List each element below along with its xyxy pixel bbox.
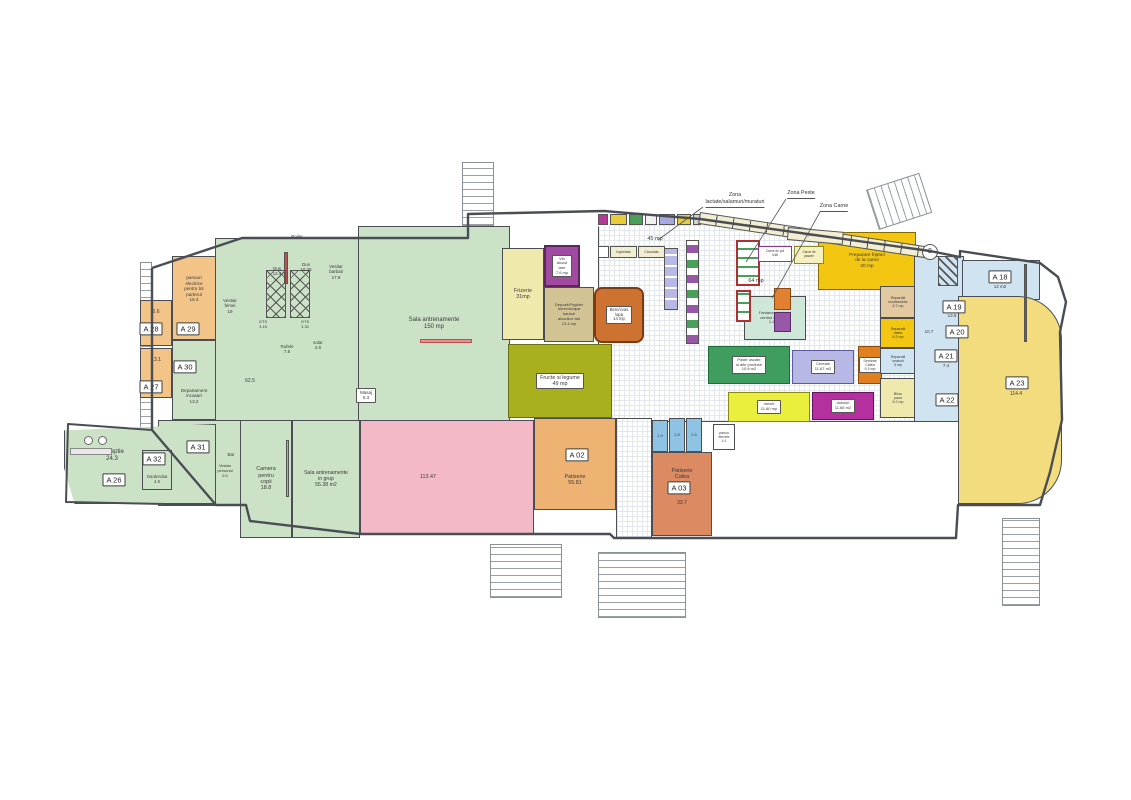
- label-solar: solar 2.6: [313, 340, 323, 351]
- room-a03-patiserie-cafea-label: Patiserie Cafea: [672, 468, 693, 481]
- label-13-5: 13.5: [948, 313, 957, 318]
- fixture-birou-receptie: [70, 448, 112, 455]
- fixture-taburet-1: [84, 436, 93, 445]
- room-paste-uscate-label: Paste uscate si alte produse 10.8 m2: [732, 356, 766, 374]
- label-bar: Bar: [227, 452, 234, 457]
- room-birou-paza: Birou paza 8.2 mp: [880, 378, 916, 418]
- fixture-vitrina-ciocolata: Ciocolata: [638, 246, 665, 258]
- fixture-hasura-a18: [938, 256, 958, 286]
- label-62-5: 62.5: [245, 378, 255, 384]
- fixture-shelf-d: [645, 214, 657, 225]
- room-seminte-cafea-label: Seminte Cafea 9.3 mp: [859, 357, 880, 374]
- room-tag-a26: A 26: [102, 473, 125, 486]
- label-gts: GTS 3.15: [259, 320, 267, 330]
- label-vestiar: Vestiar personal 5.5: [217, 464, 232, 478]
- zone-label-1: Zona Peste: [787, 190, 815, 199]
- room-tag-a27: A 27: [139, 380, 162, 393]
- room-camera-copii: Camera pentru copii 18.8: [240, 420, 292, 538]
- room-tag-a03: A 03: [667, 481, 690, 494]
- room-a02-patiserie: Patiserie 55.81: [534, 418, 616, 510]
- room-tag-a31: A 31: [186, 440, 209, 453]
- fixture-taburet-2: [98, 436, 107, 445]
- room-sala-antrenamente-label: Sala antrenamente 150 mp: [409, 317, 460, 331]
- room-a30-departament: Departament incasari 13.2: [172, 340, 216, 420]
- room-wc-3: 2.5: [686, 418, 702, 452]
- floor-plan-layer: Sala antrenamente 150 mpReceptie 24.3Cam…: [0, 0, 1131, 800]
- stairs-balcon-stanga: [140, 262, 152, 432]
- floor-plan: Sala antrenamente 150 mpReceptie 24.3Cam…: [0, 0, 1131, 800]
- room-panou-electric-label: panou electric 4.1: [718, 431, 729, 443]
- label-12-m2: 12 m2: [994, 284, 1007, 289]
- fixture-carne-de-pui: Carne de pui 4.68: [758, 246, 792, 262]
- fixture-raft-vertical: [664, 248, 678, 310]
- label-vestiar: Vestiar femei 19: [223, 298, 237, 314]
- fixture-insula-1: [774, 288, 791, 310]
- label-114-4: 114.4: [1010, 391, 1022, 397]
- label-dus: Dus 10.25: [300, 262, 311, 273]
- room-tag-a22: A 22: [935, 393, 958, 406]
- room-bere-cvas: Bere/cvas /apa 14 mp: [594, 287, 644, 343]
- room-depozit-frigider-label: Depozit/Frigider bere/vin/apa bauturi al…: [555, 303, 583, 327]
- room-paste-uscate: Paste uscate si alte produse 10.8 m2: [708, 346, 790, 384]
- room-sala-grup: Sala antrenamente in grup 55.38 m2: [292, 420, 360, 538]
- fixture-carne-de-pui-label: Carne de pui 4.68: [766, 250, 784, 258]
- fixture-carne-de-pasare-label: Carne de pasare: [802, 251, 815, 259]
- fixture-shelf-e: [659, 214, 675, 225]
- fixture-shelf-a: [598, 214, 608, 225]
- room-cereale-label: Cereale 11.67 m2: [811, 360, 835, 373]
- fixture-lift-2: [290, 270, 310, 318]
- room-wc-3-label: 2.5: [691, 433, 697, 438]
- room-mezel-label: mezel 11.60 mp: [757, 400, 781, 413]
- fixture-marcaj-2: 2: [922, 244, 938, 260]
- fixture-shelf-b: [610, 214, 627, 225]
- room-tag-a21: A 21: [934, 349, 957, 362]
- label-gts: GTS 3.32: [301, 320, 309, 330]
- label-45-mp: 45 mp: [647, 236, 662, 243]
- fixture-carne-de-pasare: Carne de pasare: [794, 246, 824, 264]
- room-depozit-frigider: Depozit/Frigider bere/vin/apa bauturi al…: [544, 287, 594, 342]
- room-a27-label: 13.1: [151, 357, 161, 363]
- room-sala-grup-label: Sala antrenamente in grup 55.38 m2: [304, 470, 348, 488]
- zone-label-2: Zona Carne: [820, 203, 848, 212]
- room-tag-a23: A 23: [1005, 376, 1028, 389]
- stairs-scara-dreapta: [1002, 518, 1040, 606]
- room-reparatii-ceasuri-label: Reparatii ceasuri 5 mp: [891, 355, 905, 368]
- room-tag-a20: A 20: [945, 325, 968, 338]
- fixture-banda-a23: [1024, 264, 1027, 342]
- label-64-mp: 64 mp: [748, 278, 763, 285]
- room-reparatii-haine-label: Reparatii haine 6.3 mp: [891, 327, 905, 340]
- fixture-insula-2: [774, 312, 791, 332]
- zone-label-0: Zona lactate/salamuri/muraturi: [705, 192, 764, 208]
- room-preparare-carne-label: Preparare fripturi de la carne 20 mp: [849, 253, 885, 270]
- stairs-scara-sus-dreapta: [866, 173, 932, 230]
- room-vin-alcool: Vin alcool tare 7.6 mp: [544, 245, 580, 287]
- room-sala-pink-label: 113.47: [420, 474, 436, 480]
- stairs-scara-sus-centru: [462, 162, 494, 226]
- fixture-vitrina-inghetata: Inghetata: [610, 246, 637, 258]
- room-tag-a18: A 18: [988, 270, 1011, 283]
- room-dulciuri: dulciuri 11.66 m2: [812, 392, 874, 420]
- room-tag-a30: A 30: [173, 360, 196, 373]
- room-tag-a29: A 29: [176, 322, 199, 335]
- fixture-vitrina-ciocolata-label: Ciocolata: [644, 250, 658, 254]
- room-fructe-legume: Fructe si legume 49 mp: [508, 344, 612, 418]
- room-tag-a28: A 28: [139, 322, 162, 335]
- room-wc-1: 1.9: [652, 420, 668, 452]
- label-rufele: Rufele 7.8: [280, 344, 293, 355]
- fixture-raft-stanga: [686, 240, 699, 344]
- fixture-banda-grup: [286, 440, 289, 497]
- fixture-frigidere-sertare-label: Frigidere sertare: [804, 233, 828, 239]
- room-tag-a02: A 02: [565, 448, 588, 461]
- label-7-4: 7.4: [943, 363, 949, 368]
- room-fructe-legume-label: Fructe si legume 49 mp: [536, 373, 584, 390]
- room-vin-alcool-label: Vin alcool tare 7.6 mp: [552, 255, 572, 278]
- room-birou-paza-label: Birou paza 8.2 mp: [893, 392, 904, 405]
- stairs-scara-jos-2: [598, 552, 686, 618]
- room-camera-copii-label: Camera pentru copii 18.8: [256, 466, 276, 492]
- fixture-vitrina-peste-2: [736, 290, 751, 322]
- room-reparatii-incaltaminte: Reparatii incaltaminte 6.7 mp: [880, 286, 916, 318]
- room-a29-panouri-label: panouri electrice pentru tot parterul 16…: [184, 275, 203, 302]
- room-wc-2-label: 2.8: [674, 433, 680, 438]
- room-a30-departament-label: Departament incasari 13.2: [181, 388, 208, 404]
- fixture-lift-1: [266, 270, 286, 318]
- room-wc-2: 2.8: [669, 418, 685, 452]
- room-panou-electric: panou electric 4.1: [713, 424, 735, 450]
- room-reparatii-haine: Reparatii haine 6.3 mp: [880, 318, 916, 348]
- room-reparatii-ceasuri: Reparatii ceasuri 5 mp: [880, 348, 916, 374]
- room-mezel: mezel 11.60 mp: [728, 392, 810, 422]
- room-cereale: Cereale 11.67 m2: [792, 350, 854, 384]
- label-masaj: Masaj 5.3: [356, 388, 376, 403]
- fixture-banda-sala: [420, 339, 472, 343]
- room-bere-cvas-label: Bere/cvas /apa 14 mp: [606, 306, 633, 325]
- stairs-scara-jos-1: [490, 544, 562, 598]
- label-33-7: 33.7: [677, 500, 687, 506]
- room-sala-antrenamente: Sala antrenamente 150 mp: [358, 226, 510, 422]
- room-frizerie-label: Frizerie 31mp: [514, 288, 532, 301]
- fixture-vitrina-capat: [598, 246, 609, 258]
- room-sala-pink: 113.47: [360, 420, 534, 535]
- label-boiler: Boiler: [291, 234, 303, 239]
- grid-corridor-patiserie: [616, 418, 652, 538]
- fixture-vitrina-inghetata-label: Inghetata: [616, 250, 630, 254]
- room-reparatii-incaltaminte-label: Reparatii incaltaminte 6.7 mp: [888, 296, 907, 309]
- label-vestiar: Vestiar barbati 17.8: [329, 264, 343, 280]
- room-a02-patiserie-label: Patiserie 55.81: [565, 474, 586, 487]
- fixture-shelf-c: [629, 214, 643, 225]
- fixture-shelf-f: [677, 214, 691, 225]
- fixture-marcaj-2-label: 2: [928, 248, 932, 256]
- room-garderoba-label: Garderoba 4.5: [147, 474, 168, 484]
- room-tag-a19: A 19: [942, 300, 965, 313]
- room-a23: [958, 296, 1062, 504]
- label-10-7: 10.7: [925, 329, 934, 334]
- room-seminte-cafea: Seminte Cafea 9.3 mp: [858, 346, 882, 384]
- room-tag-a32: A 32: [142, 452, 165, 465]
- label-dus: Dus 12.4: [273, 266, 282, 277]
- room-dulciuri-label: dulciuri 11.66 m2: [831, 399, 855, 412]
- room-a28-label: 6.6: [152, 309, 159, 315]
- room-wc-1-label: 1.9: [657, 434, 663, 439]
- room-frizerie: Frizerie 31mp: [502, 248, 544, 340]
